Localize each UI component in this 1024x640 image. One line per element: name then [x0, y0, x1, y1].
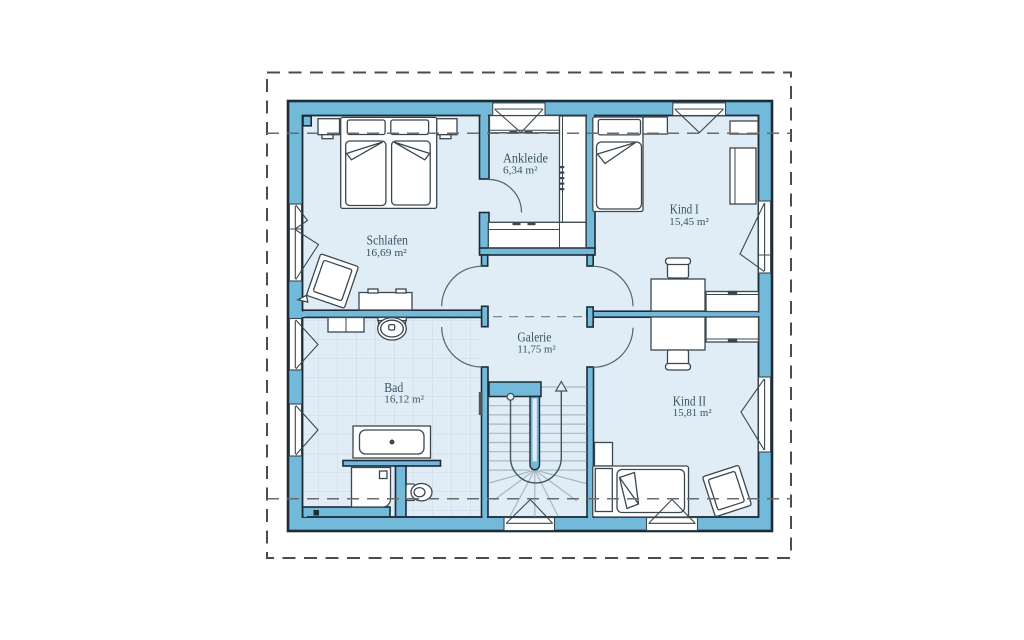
- svg-text:Bad: Bad: [384, 380, 403, 395]
- svg-text:16,12 m²: 16,12 m²: [384, 394, 424, 406]
- svg-text:15,81 m²: 15,81 m²: [673, 407, 712, 419]
- svg-text:Kind I: Kind I: [670, 201, 699, 216]
- svg-text:Schlafen: Schlafen: [367, 233, 409, 248]
- svg-text:11,75 m²: 11,75 m²: [517, 344, 556, 356]
- svg-text:15,45 m²: 15,45 m²: [669, 216, 709, 228]
- svg-text:16,69 m²: 16,69 m²: [366, 247, 408, 259]
- svg-text:6,34 m²: 6,34 m²: [503, 164, 538, 176]
- svg-text:Galerie: Galerie: [517, 329, 551, 344]
